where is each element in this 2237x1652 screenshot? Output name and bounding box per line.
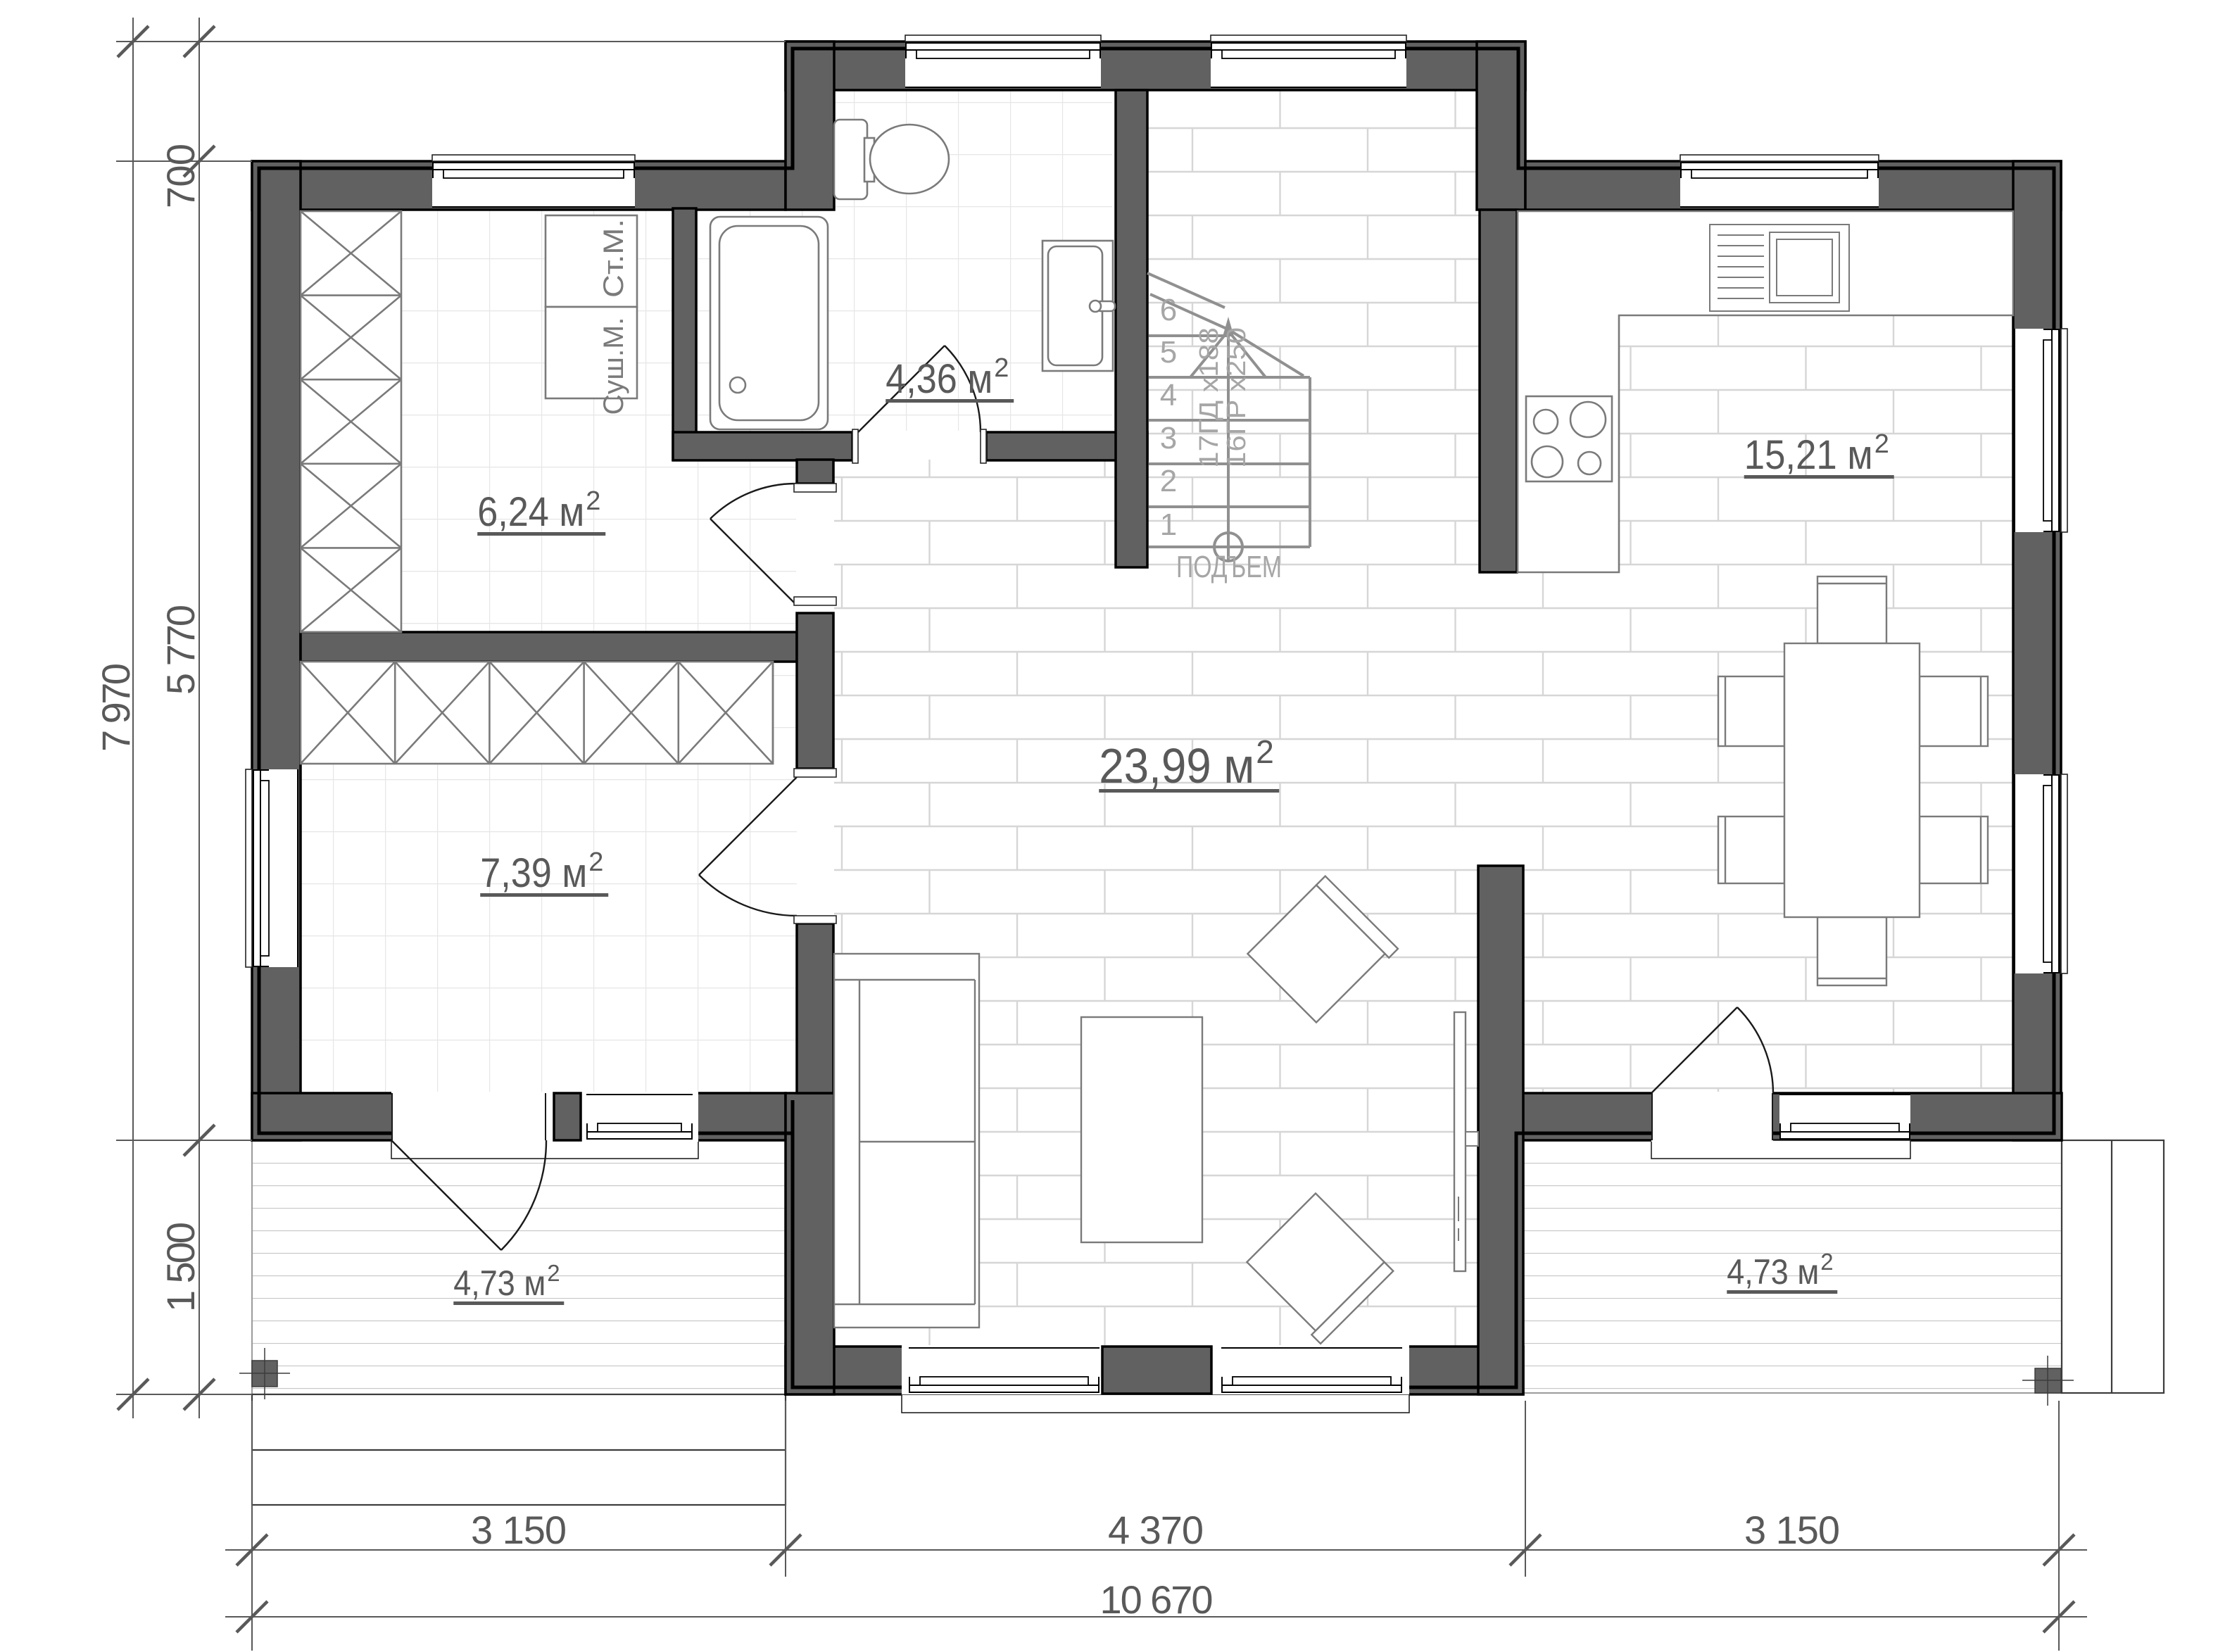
svg-text:2: 2 (994, 353, 1009, 383)
svg-text:1 500: 1 500 (158, 1222, 203, 1312)
svg-text:5 770: 5 770 (158, 605, 203, 695)
svg-text:2: 2 (1160, 464, 1177, 498)
svg-text:Суш.М.: Суш.М. (598, 317, 629, 415)
svg-text:5: 5 (1160, 335, 1177, 370)
svg-text:4,36 м: 4,36 м (886, 356, 993, 402)
svg-text:2: 2 (547, 1260, 560, 1286)
svg-text:3 150: 3 150 (471, 1508, 567, 1552)
svg-text:2: 2 (1820, 1249, 1833, 1275)
svg-text:15,21 м: 15,21 м (1744, 432, 1873, 478)
svg-text:4,73 м: 4,73 м (1727, 1252, 1819, 1292)
svg-text:2: 2 (586, 486, 600, 516)
svg-text:4: 4 (1160, 378, 1177, 412)
svg-text:6: 6 (1160, 293, 1177, 327)
svg-text:17ГД х188: 17ГД х188 (1195, 327, 1224, 468)
svg-text:1: 1 (1160, 507, 1177, 542)
svg-text:4,73 м: 4,73 м (453, 1263, 546, 1303)
svg-text:7 970: 7 970 (94, 663, 138, 752)
svg-text:3: 3 (1160, 421, 1177, 455)
svg-text:6,24 м: 6,24 м (477, 489, 584, 535)
svg-text:16ГР х250: 16ГР х250 (1222, 327, 1252, 468)
svg-text:4 370: 4 370 (1108, 1508, 1204, 1552)
svg-text:700: 700 (158, 144, 203, 208)
svg-text:ПОДЪЕМ: ПОДЪЕМ (1176, 550, 1282, 584)
svg-text:2: 2 (1256, 733, 1274, 770)
svg-text:2: 2 (1874, 429, 1889, 459)
svg-text:3 150: 3 150 (1744, 1508, 1840, 1552)
svg-text:7,39 м: 7,39 м (480, 850, 587, 896)
svg-text:Ст.М.: Ст.М. (598, 219, 629, 298)
svg-text:10 670: 10 670 (1100, 1577, 1214, 1622)
svg-text:23,99 м: 23,99 м (1099, 738, 1254, 793)
svg-text:2: 2 (588, 847, 603, 877)
